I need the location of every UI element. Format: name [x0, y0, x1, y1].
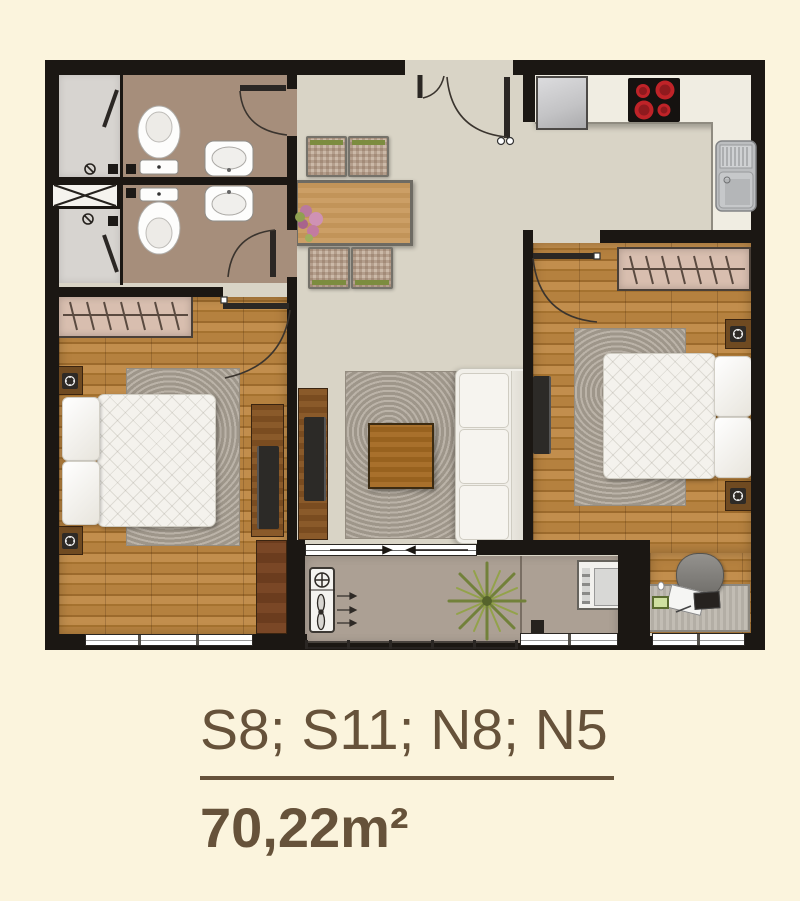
fridge [536, 76, 588, 130]
wall [751, 60, 765, 650]
doorway-bedroom-left [223, 287, 287, 297]
sofa-cushion [459, 373, 509, 428]
wardrobe-right [617, 247, 751, 291]
washing-machine-controls [582, 568, 590, 604]
photo-frame [652, 596, 669, 609]
window-desk-nook [652, 633, 745, 646]
sofa-cushion [459, 429, 509, 484]
pillow [714, 417, 752, 478]
nightstand [725, 481, 752, 511]
wall [477, 540, 533, 555]
window-balcony-right [520, 633, 618, 646]
shaft-box [50, 182, 120, 209]
ac-tech-unit [309, 567, 335, 633]
caption: S8; S11; N8; N5 70,22m² [200, 702, 614, 860]
balcony-section-divider [520, 556, 522, 643]
tv-living [304, 417, 326, 501]
dining-chair [348, 136, 389, 177]
wall [745, 633, 765, 650]
wardrobe-left [57, 295, 193, 338]
doorway-bathroom-top [287, 89, 297, 136]
tv-bedroom-left [257, 446, 279, 529]
wall [287, 136, 297, 230]
entrance-threshold [405, 60, 513, 74]
bathroom-bottom-floor [123, 185, 287, 283]
bathroom-top-floor [123, 74, 287, 177]
wall [513, 60, 765, 75]
dresser-left [256, 540, 287, 634]
dining-table [295, 180, 413, 246]
sliding-door-track [306, 550, 476, 551]
coffee-table [368, 423, 434, 489]
pillow [714, 356, 752, 417]
wall [287, 74, 297, 89]
pillow [62, 397, 100, 461]
wall [523, 60, 535, 122]
sofa [455, 368, 533, 544]
unit-codes: S8; S11; N8; N5 [200, 702, 614, 759]
doorway-bathroom-bottom [287, 230, 297, 277]
wall [523, 230, 533, 553]
nightstand [57, 526, 83, 555]
wall [618, 540, 650, 650]
wall [253, 634, 307, 650]
wall [600, 230, 751, 243]
stove [628, 78, 680, 122]
kitchen-counter-right [711, 122, 751, 233]
nightstand [57, 366, 83, 395]
wall [45, 287, 223, 297]
floor-drain [531, 620, 544, 633]
wall [45, 60, 59, 650]
pillow [62, 461, 100, 525]
bed-right [603, 353, 716, 479]
dining-chair [308, 247, 350, 289]
wall [45, 60, 405, 75]
wall [120, 74, 123, 285]
area-value: 70,22m² [200, 795, 614, 860]
window-bedroom-left [85, 634, 253, 646]
dining-chair [306, 136, 347, 177]
wall [45, 634, 85, 650]
doorway-bedroom-right [533, 230, 600, 243]
dining-chair [351, 247, 393, 289]
caption-divider [200, 776, 614, 780]
sofa-cushion [459, 485, 509, 540]
balcony-floor [305, 556, 618, 643]
bed-left [97, 394, 216, 527]
wall [287, 277, 297, 540]
sliding-door [305, 544, 477, 556]
tv-bedroom-right [533, 376, 551, 454]
shower-room-top-floor [59, 74, 120, 177]
floor-plan [0, 0, 800, 660]
tablet [693, 591, 720, 610]
nightstand [725, 319, 752, 349]
